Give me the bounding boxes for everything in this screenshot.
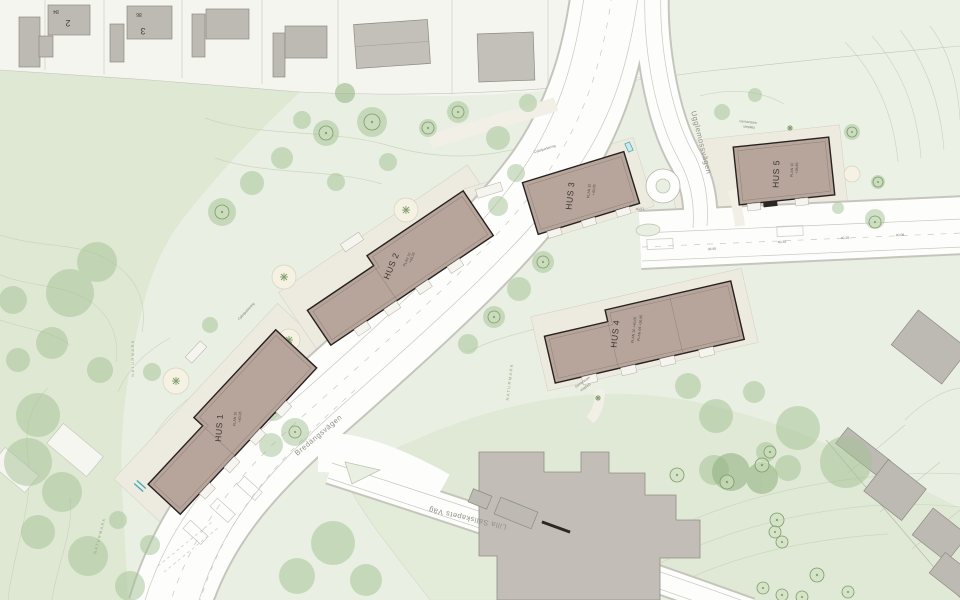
label-hus-5-lvl1: PLAN 10 <box>790 163 794 178</box>
label-hus-1-lvl2: +40,05 <box>238 411 243 422</box>
label-house-2: 2 <box>65 18 70 28</box>
spot-elevation: 40,35 <box>778 240 787 244</box>
label-hus-1: HUS 1 <box>213 413 225 442</box>
spot-elevation: 39,95 <box>708 247 717 251</box>
label-naturmark-1: NATURMARK <box>130 339 135 377</box>
site-plan-screenshot: HUS 1 PLAN 10 +40,05 HUS 2 PLAN 10 +40,0… <box>0 0 960 600</box>
label-hus-5-lvl2: +38,85 <box>795 162 799 173</box>
label-house-3: 3 <box>140 26 145 36</box>
label-plot-84: 84 <box>53 8 59 14</box>
spot-elevation: 40,28 <box>841 236 850 240</box>
label-plot-86: 86 <box>136 11 142 17</box>
spot-elevation: 40,08 <box>896 233 905 237</box>
label-hus-5: HUS 5 <box>771 160 782 188</box>
site-plan-map: HUS 1 PLAN 10 +40,05 HUS 2 PLAN 10 +40,0… <box>0 0 960 600</box>
spot-elevation: 40,51 <box>636 207 645 211</box>
